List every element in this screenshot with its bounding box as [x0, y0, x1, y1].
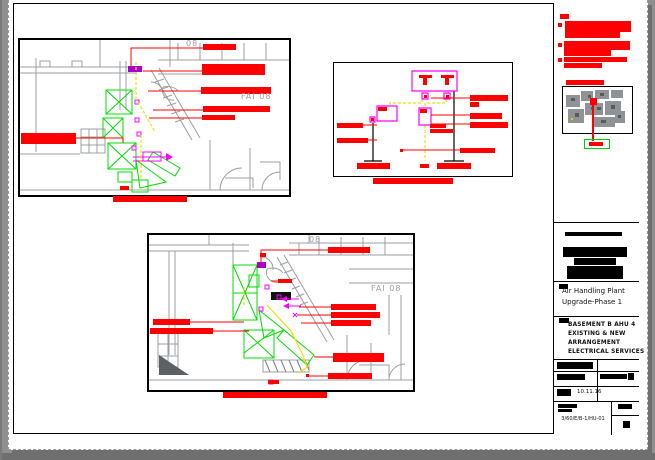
- keyplan-yellow-dot: [571, 118, 573, 120]
- note1-bullet: [558, 23, 562, 27]
- floor-plan-new-svg: [149, 235, 413, 390]
- row2-right-square: [628, 373, 634, 380]
- drawing-title-line4: ELECTRICAL SERVICES: [568, 348, 644, 357]
- keyplan-label-redacted: [566, 80, 604, 85]
- drawing-sheet: 08 FAI 08: [8, 0, 648, 450]
- note3-redacted-line2: [564, 63, 602, 68]
- company-logo-redacted3: [567, 266, 623, 279]
- company-logo-redacted: [563, 247, 627, 257]
- rev-value-redacted: [618, 404, 632, 409]
- plan-annotations-red: [150, 247, 384, 384]
- tb-right-split: [611, 415, 639, 416]
- date-label-redacted: [557, 389, 571, 396]
- viewport-plan-existing[interactable]: 08 FAI 08: [18, 38, 291, 197]
- note2-redacted: [564, 41, 630, 50]
- room-label-08: 08: [309, 236, 321, 244]
- floor-plan-existing-svg: [20, 40, 289, 195]
- drawing-title-line3: ARRANGEMENT: [568, 339, 620, 348]
- viewport3-title-redacted: [223, 392, 327, 398]
- drawing-title-line2: EXISTING & NEW: [568, 330, 626, 339]
- tb-divider2: [554, 316, 639, 317]
- company-logo-bar: [565, 232, 622, 236]
- note2-redacted-line2: [564, 50, 611, 56]
- note1-redacted: [565, 21, 631, 32]
- note2-bullet: [558, 43, 562, 47]
- title-block-column: Air Handling Plant Upgrade-Phase 1 BASEM…: [553, 3, 638, 434]
- keyplan-arrow-line: [592, 103, 594, 141]
- viewport1-title-redacted: [113, 196, 187, 202]
- room-label-08: 08: [186, 40, 198, 48]
- row2-value-redacted: [557, 374, 585, 380]
- note-heading-redacted: [560, 14, 569, 19]
- note3-bullet: [558, 58, 562, 62]
- room-label-fai08: FAI 08: [241, 93, 271, 101]
- company-logo-redacted2: [574, 258, 616, 265]
- plan-walls: [20, 40, 289, 190]
- viewport2-title-redacted: [373, 178, 453, 184]
- rev-square-redacted: [623, 421, 630, 428]
- row2-right-redacted: [600, 374, 627, 379]
- desktop-shadow-strip: [0, 453, 655, 460]
- tb-vdivider2: [611, 401, 612, 435]
- number-label-redacted2: [558, 409, 572, 412]
- schematic-svg: [334, 63, 511, 175]
- room-label-fai08: FAI 08: [371, 285, 401, 293]
- viewport-schematic[interactable]: [333, 62, 513, 177]
- project-title-line1: Air Handling Plant: [562, 287, 625, 296]
- tb-divider6: [554, 401, 639, 402]
- tb-vdivider1: [597, 359, 598, 401]
- viewport-plan-new[interactable]: 08 FAI 08: [147, 233, 415, 392]
- keyplan-target-box: [584, 139, 610, 149]
- drawing-number-value: 3/60/E/B-1/HU-01: [556, 416, 610, 422]
- number-label-redacted: [558, 404, 577, 408]
- tb-divider1: [554, 281, 639, 282]
- title-block: Air Handling Plant Upgrade-Phase 1 BASEM…: [554, 222, 639, 434]
- note3-redacted: [564, 57, 627, 62]
- keyplan-target-redacted: [589, 142, 603, 146]
- note1-redacted-line2: [565, 32, 620, 38]
- desktop-left-edge: [0, 0, 2, 460]
- row1-value-redacted: [557, 362, 593, 369]
- drawing-title-line1: BASEMENT B AHU 4: [568, 321, 635, 330]
- keyplan-box: [562, 86, 633, 134]
- schematic-red-annotations: [337, 75, 508, 169]
- project-title-line2: Upgrade-Phase 1: [562, 298, 622, 307]
- keyplan-map-svg: [563, 87, 631, 132]
